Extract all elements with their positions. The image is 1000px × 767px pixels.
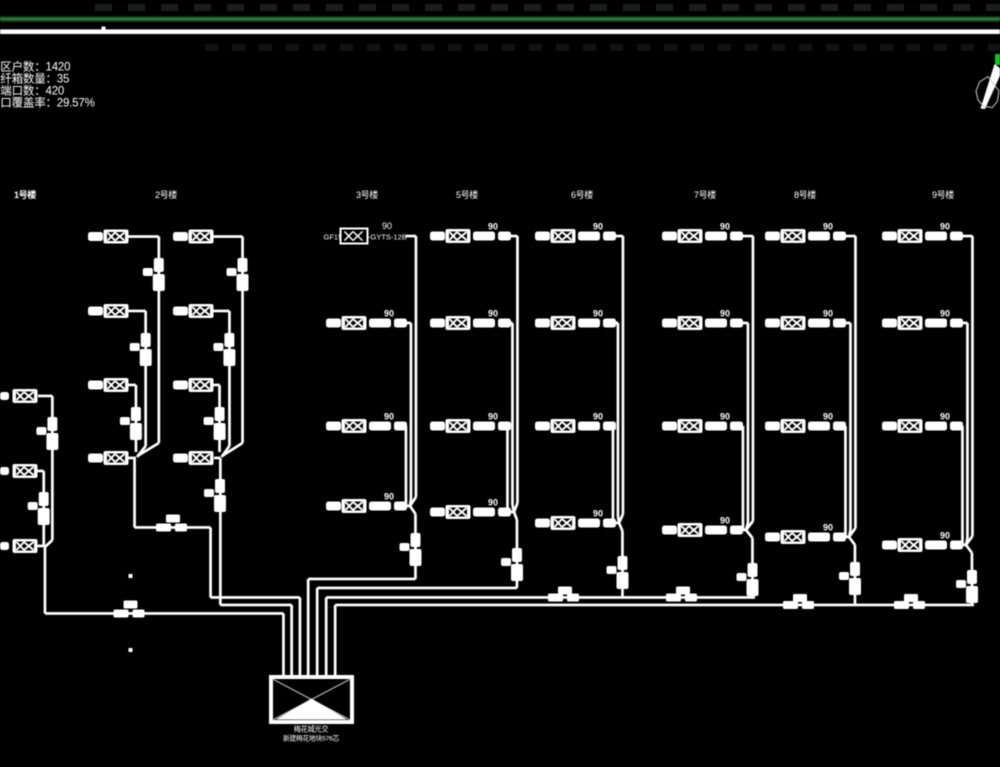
- svg-text:梅花城光交: 梅花城光交: [294, 725, 329, 734]
- svg-text:90: 90: [940, 222, 950, 232]
- svg-text:90: 90: [593, 309, 603, 319]
- svg-text:90: 90: [823, 523, 833, 533]
- svg-text:6号楼: 6号楼: [571, 189, 593, 200]
- svg-text:90: 90: [593, 222, 603, 232]
- svg-text:9号楼: 9号楼: [932, 189, 954, 200]
- svg-text:GF15: GF15: [324, 233, 343, 242]
- svg-text:3号楼: 3号楼: [356, 189, 378, 200]
- svg-text:90: 90: [823, 309, 833, 319]
- svg-text:90: 90: [382, 221, 392, 231]
- svg-text:7号楼: 7号楼: [694, 189, 716, 200]
- svg-text:90: 90: [593, 509, 603, 519]
- svg-text:90: 90: [384, 492, 394, 502]
- svg-text:分纤箱数量：35: 分纤箱数量：35: [0, 72, 69, 86]
- svg-text:小区户数：1420: 小区户数：1420: [0, 60, 70, 74]
- svg-text:90: 90: [940, 309, 950, 319]
- svg-text:90: 90: [593, 412, 603, 422]
- svg-text:1号楼: 1号楼: [14, 189, 36, 200]
- svg-text:总端口数：420: 总端口数：420: [0, 84, 64, 98]
- svg-text:-GYTS-12B: -GYTS-12B: [368, 233, 407, 242]
- svg-text:90: 90: [720, 309, 730, 319]
- svg-text:90: 90: [384, 309, 394, 319]
- svg-text:90: 90: [488, 412, 498, 422]
- svg-text:90: 90: [823, 222, 833, 232]
- svg-text:90: 90: [720, 222, 730, 232]
- svg-text:90: 90: [488, 498, 498, 508]
- svg-text:2号楼: 2号楼: [155, 189, 177, 200]
- svg-text:新建梅花地块576芯: 新建梅花地块576芯: [283, 734, 339, 743]
- svg-text:端口覆盖率：29.57%: 端口覆盖率：29.57%: [0, 96, 95, 110]
- svg-text:90: 90: [488, 222, 498, 232]
- svg-text:90: 90: [384, 412, 394, 422]
- svg-text:90: 90: [488, 309, 498, 319]
- svg-text:90: 90: [940, 531, 950, 541]
- svg-text:5号楼: 5号楼: [456, 189, 478, 200]
- svg-text:8号楼: 8号楼: [794, 189, 816, 200]
- svg-text:90: 90: [823, 412, 833, 422]
- svg-text:90: 90: [940, 412, 950, 422]
- svg-text:90: 90: [720, 412, 730, 422]
- svg-text:90: 90: [720, 516, 730, 526]
